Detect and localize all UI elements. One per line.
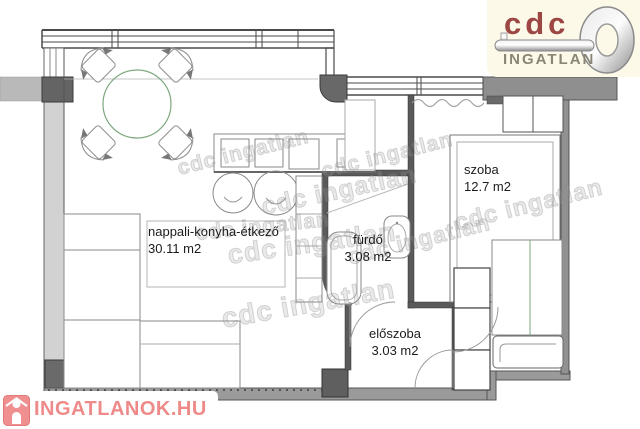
- ingatlanok-logo: INGATLANOK.HU: [0, 391, 218, 429]
- radiator: [412, 100, 484, 107]
- room-area: 30.11 m2: [148, 240, 279, 257]
- floor-plan-image: { "branding": { "cdc_logo": { "brand": "…: [0, 0, 640, 429]
- room-name: előszoba: [369, 326, 421, 341]
- room-label-hall: előszoba 3.03 m2: [350, 325, 440, 359]
- top-window: [42, 30, 334, 48]
- ingatlanok-text: INGATLANOK.HU: [34, 398, 207, 421]
- wall-step: [326, 30, 334, 75]
- room-area: 3.08 m2: [336, 248, 400, 265]
- dining-chairs: [72, 39, 202, 169]
- cdc-subtitle-text: INGATLAN: [503, 51, 595, 68]
- room-area: 3.03 m2: [350, 342, 440, 359]
- wardrobe-column: [454, 268, 490, 390]
- room-label-bedroom: szoba 12.7 m2: [464, 161, 511, 195]
- house-icon: [3, 395, 30, 426]
- room-name: nappali-konyha-étkező: [148, 224, 279, 239]
- cdc-ingatlan-logo: cdc INGATLAN: [487, 0, 640, 77]
- room-label-bathroom: fürdő 3.08 m2: [336, 231, 400, 265]
- bench: [493, 336, 563, 368]
- wardrobe-top: [503, 96, 563, 132]
- room-area: 12.7 m2: [464, 178, 511, 195]
- rounded-pillar: [320, 75, 347, 102]
- room-label-living: nappali-konyha-étkező 30.11 m2: [148, 223, 279, 257]
- bedroom-window: [347, 77, 483, 95]
- left-wall: [0, 48, 73, 390]
- cdc-brand-text: cdc: [504, 6, 569, 42]
- room-name: fürdő: [353, 232, 383, 247]
- room-name: szoba: [464, 162, 499, 177]
- dining-table: [103, 70, 171, 138]
- bedroom-bottom-wall: [487, 371, 570, 400]
- kitchen-sink-left: [213, 173, 253, 213]
- bedroom-cabinets: [492, 240, 563, 368]
